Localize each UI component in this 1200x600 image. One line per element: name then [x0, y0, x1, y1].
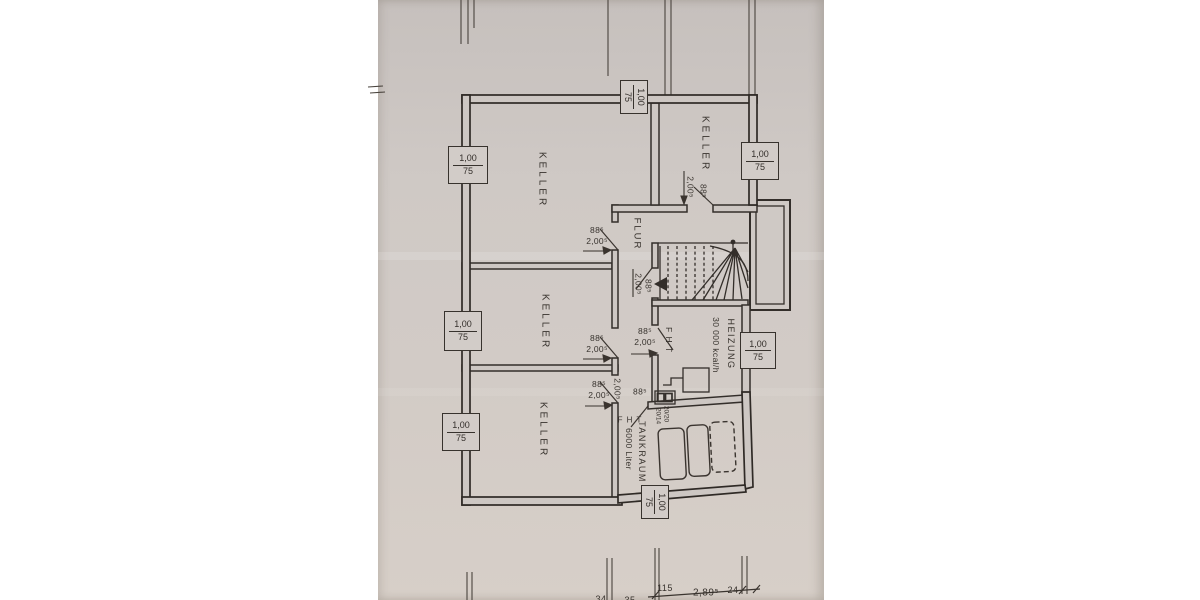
- room-label-keller-top-left: KELLER: [537, 152, 548, 208]
- scanned-floorplan-photo: KELLER KELLER KELLER KELLER FLUR HEIZUNG…: [0, 0, 1200, 600]
- door-width-label-stair: 88⁵: [642, 279, 653, 293]
- heizung-capacity-label: 30 000 kcal/h: [711, 317, 721, 373]
- door-height: 2,00⁵: [588, 390, 610, 400]
- window-height: 75: [463, 167, 473, 176]
- window-width: 1,00: [749, 340, 767, 349]
- tankraum-capacity-label: 6000 Liter: [624, 428, 634, 470]
- dimension-partial-35: 35: [624, 595, 635, 600]
- door-width: 88⁵: [638, 326, 652, 336]
- window-box-bottom: 1,0075: [641, 485, 669, 519]
- room-label-keller-top-right: KELLER: [700, 116, 711, 172]
- window-box-left-2: 1,0075: [444, 311, 482, 351]
- room-label-flur: FLUR: [632, 218, 643, 251]
- window-width: 1,00: [657, 493, 666, 511]
- dimension-2895: 2,89⁵: [693, 588, 719, 599]
- window-width: 1,00: [454, 320, 472, 329]
- door-height: 2,00⁵: [586, 236, 608, 246]
- window-box-left-1: 1,0075: [448, 146, 488, 184]
- room-label-heizung: HEIZUNG: [726, 319, 736, 370]
- door-height-label-keller-top-right: 2,00⁵: [684, 176, 695, 198]
- window-height: 75: [456, 434, 466, 443]
- window-height: 75: [644, 497, 653, 507]
- dimension-partial-34: 34: [595, 594, 606, 600]
- door-width: 88⁵: [590, 333, 604, 343]
- door-label-heizung: 88⁵ 2,00⁵: [634, 326, 656, 348]
- dimension-24: 24: [727, 585, 738, 595]
- door-label-keller-middle: 88⁵ 2,00⁵: [586, 333, 608, 355]
- window-height: 75: [458, 333, 468, 342]
- chimney-flue-label-a: 20/20: [663, 406, 670, 422]
- room-label-tankraum: TANKRAUM: [637, 421, 647, 483]
- window-width: 1,00: [636, 88, 645, 106]
- door-width: 88⁵: [592, 379, 606, 389]
- door-width-label-keller-top-right: 88⁵: [697, 184, 708, 198]
- door-label-keller-bottom: 88⁵ 2,00⁵: [588, 379, 610, 401]
- room-label-keller-bottom: KELLER: [538, 402, 549, 458]
- fire-door-label-heizung: F H T: [664, 327, 674, 353]
- door-height-label-tankraum: 2,00⁵: [611, 378, 622, 400]
- floorplan-linework: [0, 0, 1200, 600]
- window-width: 1,00: [459, 154, 477, 163]
- window-height: 75: [755, 163, 765, 172]
- door-height: 2,00⁵: [586, 344, 608, 354]
- window-box-top: 1,0075: [620, 80, 648, 114]
- chimney-flue-label-b: 20/14: [655, 408, 662, 424]
- door-width-label-tankraum: 88⁵: [633, 386, 647, 397]
- window-width: 1,00: [751, 150, 769, 159]
- window-height: 75: [753, 353, 763, 362]
- window-box-left-3: 1,0075: [442, 413, 480, 451]
- window-height: 75: [623, 92, 632, 102]
- door-label-flur: 88⁵ 2,00⁵: [586, 225, 608, 247]
- door-height: 2,00⁵: [634, 337, 656, 347]
- room-label-keller-middle: KELLER: [540, 294, 551, 350]
- window-width: 1,00: [452, 421, 470, 430]
- dimension-115: 115: [657, 583, 673, 593]
- window-box-right-2: 1,0075: [740, 332, 776, 369]
- window-box-right-1: 1,0075: [741, 142, 779, 180]
- door-width: 88⁵: [590, 225, 604, 235]
